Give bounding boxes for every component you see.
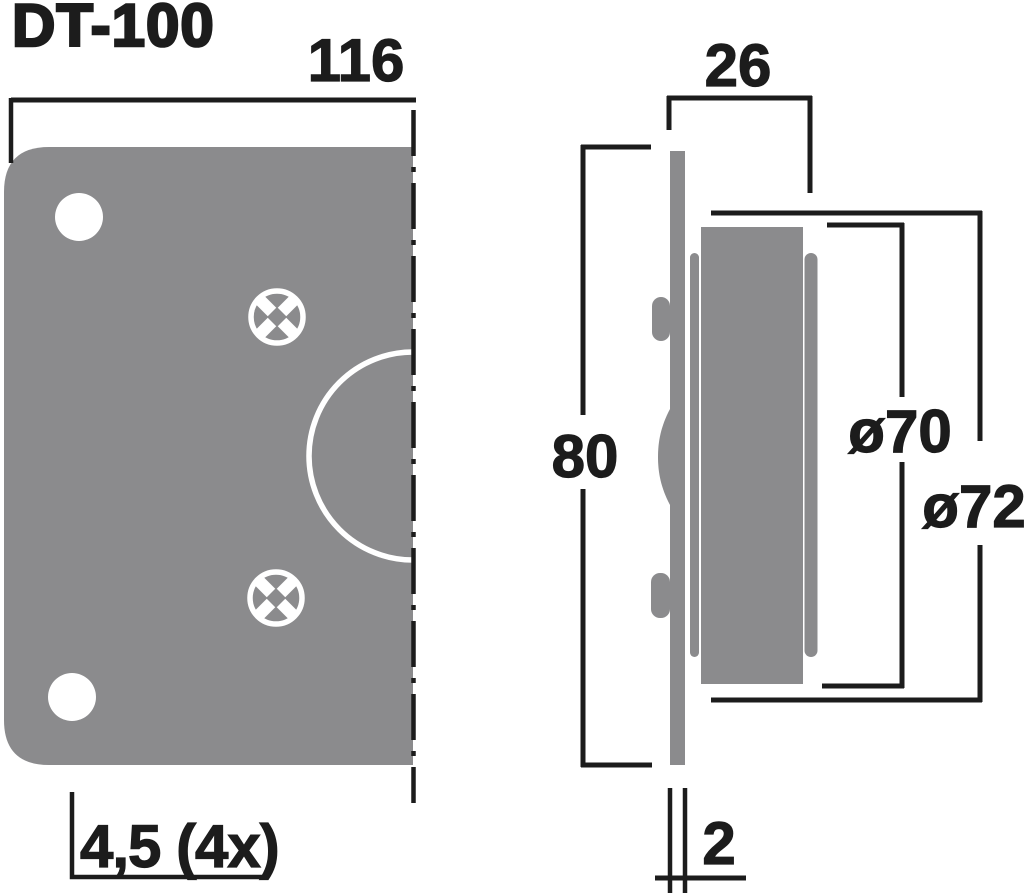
magnet-front-strip [690, 253, 699, 657]
screw-bump-top [652, 297, 670, 341]
screw-bump-bottom [651, 573, 670, 618]
dim-2-label: 2 [702, 810, 735, 877]
dimension-drawing: 116 4,5 (4x) 26 80 [0, 0, 1024, 893]
flange-plate [670, 151, 685, 765]
mounting-hole-bottom [48, 673, 96, 721]
magnet-rear-strip [805, 253, 818, 657]
dim-116-label: 116 [308, 27, 405, 94]
dome-bulge [658, 409, 670, 505]
dim-26-label: 26 [705, 32, 772, 99]
side-view: 26 80 ø70 ø72 2 [552, 32, 1024, 893]
spec-drawing-page: 116 4,5 (4x) 26 80 [0, 0, 1024, 893]
dim-72-label: ø72 [922, 473, 1024, 540]
page-title: DT-100 [12, 0, 215, 59]
dim-70-label: ø70 [848, 398, 951, 465]
mounting-hole-top [55, 193, 103, 241]
hole-dim-label: 4,5 (4x) [80, 813, 279, 880]
faceplate-shape [4, 147, 413, 765]
magnet-body [701, 227, 803, 684]
front-view: 116 4,5 (4x) [4, 27, 416, 880]
dim-80-label: 80 [552, 423, 619, 490]
